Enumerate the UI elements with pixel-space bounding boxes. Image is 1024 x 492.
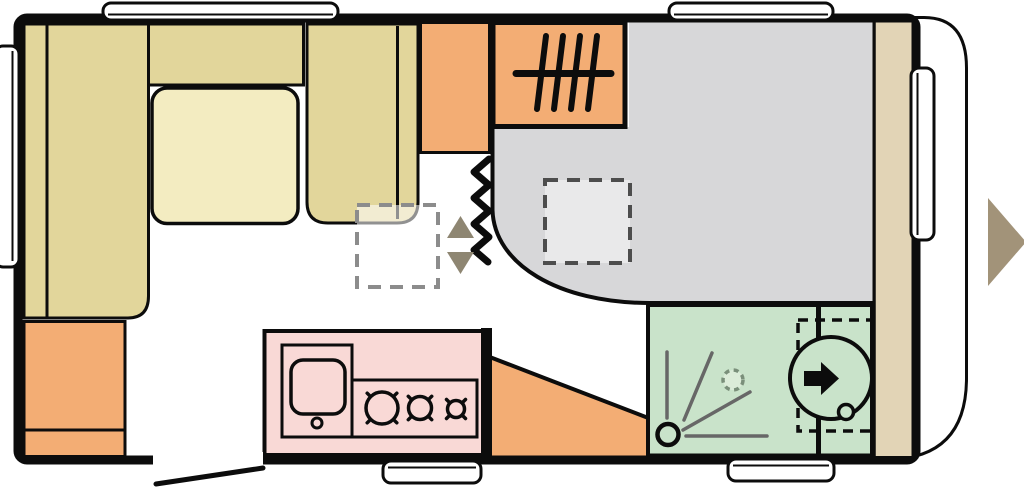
entry-door <box>153 452 263 484</box>
kitchen-unit <box>265 328 493 458</box>
floor-plan-canvas <box>0 0 1024 492</box>
bed-dashed-area <box>545 180 630 263</box>
sofa-right <box>307 24 418 223</box>
burner-small <box>447 400 466 419</box>
kitchen-wall <box>481 328 492 458</box>
dinette-table <box>152 88 298 224</box>
front-window <box>0 46 19 267</box>
sofa-backrest-left <box>24 24 47 318</box>
front-cabinet <box>24 322 125 457</box>
rear-side-panel <box>873 23 912 457</box>
sofa-left <box>47 24 149 318</box>
heater-unit <box>493 23 625 127</box>
toilet-flush <box>839 405 854 420</box>
sofa-top-backrest <box>149 24 304 85</box>
side-window-bathroom <box>728 459 834 481</box>
door-swing-line <box>156 468 263 484</box>
wardrobe-cabinet <box>421 23 490 153</box>
sink-basin <box>291 360 345 414</box>
door-opening <box>153 452 263 468</box>
burner-medium <box>408 396 431 419</box>
caravan-floor-plan <box>0 0 1024 492</box>
shower-drain <box>723 370 743 390</box>
entry-door-arrow-icon <box>988 198 1024 286</box>
roof-window-front <box>103 3 338 20</box>
bathroom <box>648 305 872 456</box>
sink-tap <box>312 418 322 428</box>
burner-large <box>366 392 398 424</box>
table-bed-conversion-dashed-area <box>357 205 438 287</box>
shower-head <box>658 424 679 445</box>
side-window-kitchen <box>383 461 481 483</box>
rear-window <box>911 68 934 240</box>
roof-window-rear <box>669 3 833 20</box>
